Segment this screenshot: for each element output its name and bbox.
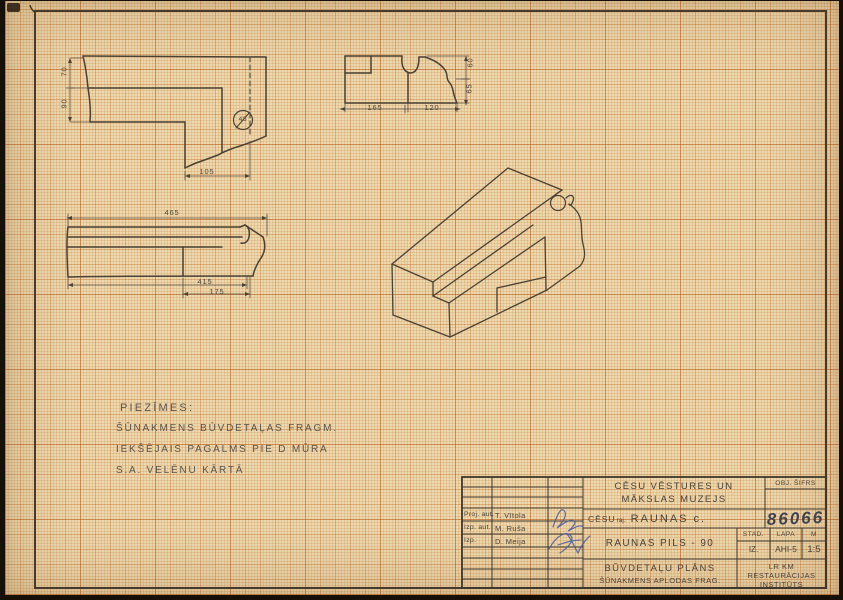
doc-title: BŪVDETAĻU PLĀNS bbox=[583, 563, 737, 574]
scale-value: 1:5 bbox=[802, 544, 826, 555]
institute-line1: LR KM bbox=[737, 562, 826, 571]
linework-layer bbox=[0, 0, 843, 600]
notes-line-2: IEKŠĒJAIS PAGALMS PIE D MŪRA bbox=[116, 444, 328, 455]
person-name-2: D. Meija bbox=[495, 537, 547, 546]
district-label: CĒSU bbox=[588, 514, 616, 524]
project-title: RAUNAS PILS - 90 bbox=[583, 538, 737, 549]
person-name-0: T. Vītola bbox=[495, 511, 547, 520]
dim-label-60: 60 bbox=[466, 53, 475, 73]
scale-label: M bbox=[802, 531, 826, 538]
stage-label: STAD. bbox=[737, 531, 770, 538]
person-role-0: Proj. aut. bbox=[464, 511, 492, 518]
dim-label-65: 65 bbox=[465, 79, 474, 99]
sheet-value: AHI-5 bbox=[770, 544, 802, 554]
district-suffix: raj. bbox=[617, 517, 626, 524]
museum-name-line1: CĒSU VĒSTURES UN bbox=[583, 481, 765, 492]
person-role-1: Izp. aut. bbox=[464, 524, 492, 531]
dim-label-90: 90 bbox=[60, 94, 69, 114]
dim-label-165: 165 bbox=[360, 103, 390, 112]
object-code-label: OBJ. ŠIFRS bbox=[765, 480, 826, 487]
dim-label-415: 415 bbox=[190, 277, 220, 286]
institute-line2: RESTAURĀCIJAS bbox=[737, 571, 826, 580]
doc-subtitle: ŠŪNAKMENS APLODAS FRAG. bbox=[583, 576, 737, 585]
dim-label-465: 465 bbox=[157, 208, 187, 217]
drawing-sheet: 70 90 105 45 165 120 60 65 465 415 175 P… bbox=[0, 0, 843, 600]
detail-circle-label: 45 bbox=[234, 116, 252, 123]
notes-title: PIEZĪMES: bbox=[120, 402, 194, 414]
person-role-2: Izp. bbox=[464, 537, 492, 544]
dim-label-70: 70 bbox=[60, 62, 69, 82]
place-label: RAUNAS c. bbox=[631, 513, 706, 525]
dim-label-105: 105 bbox=[192, 167, 222, 176]
museum-name-line2: MĀKSLAS MUZEJS bbox=[583, 494, 765, 505]
dim-label-175: 175 bbox=[202, 287, 232, 296]
dim-label-120: 120 bbox=[417, 103, 447, 112]
long-section-drawing bbox=[67, 214, 267, 298]
signature-1 bbox=[553, 510, 583, 531]
location-row: CĒSU raj. RAUNAS c. bbox=[588, 513, 763, 527]
isometric-drawing bbox=[392, 168, 585, 337]
institute-line3: INSTITŪTS bbox=[737, 580, 826, 589]
sheet-label: LAPA bbox=[770, 531, 802, 538]
notes-line-1: ŠŪNAKMENS BŪVDETAĻAS FRAGM. bbox=[116, 423, 338, 434]
object-number: 86066 bbox=[765, 508, 827, 530]
stage-value: IZ. bbox=[737, 545, 770, 554]
notes-line-3: S.A. VELĒNU KĀRTĀ bbox=[116, 465, 244, 476]
person-name-1: M. Ruša bbox=[495, 524, 547, 533]
